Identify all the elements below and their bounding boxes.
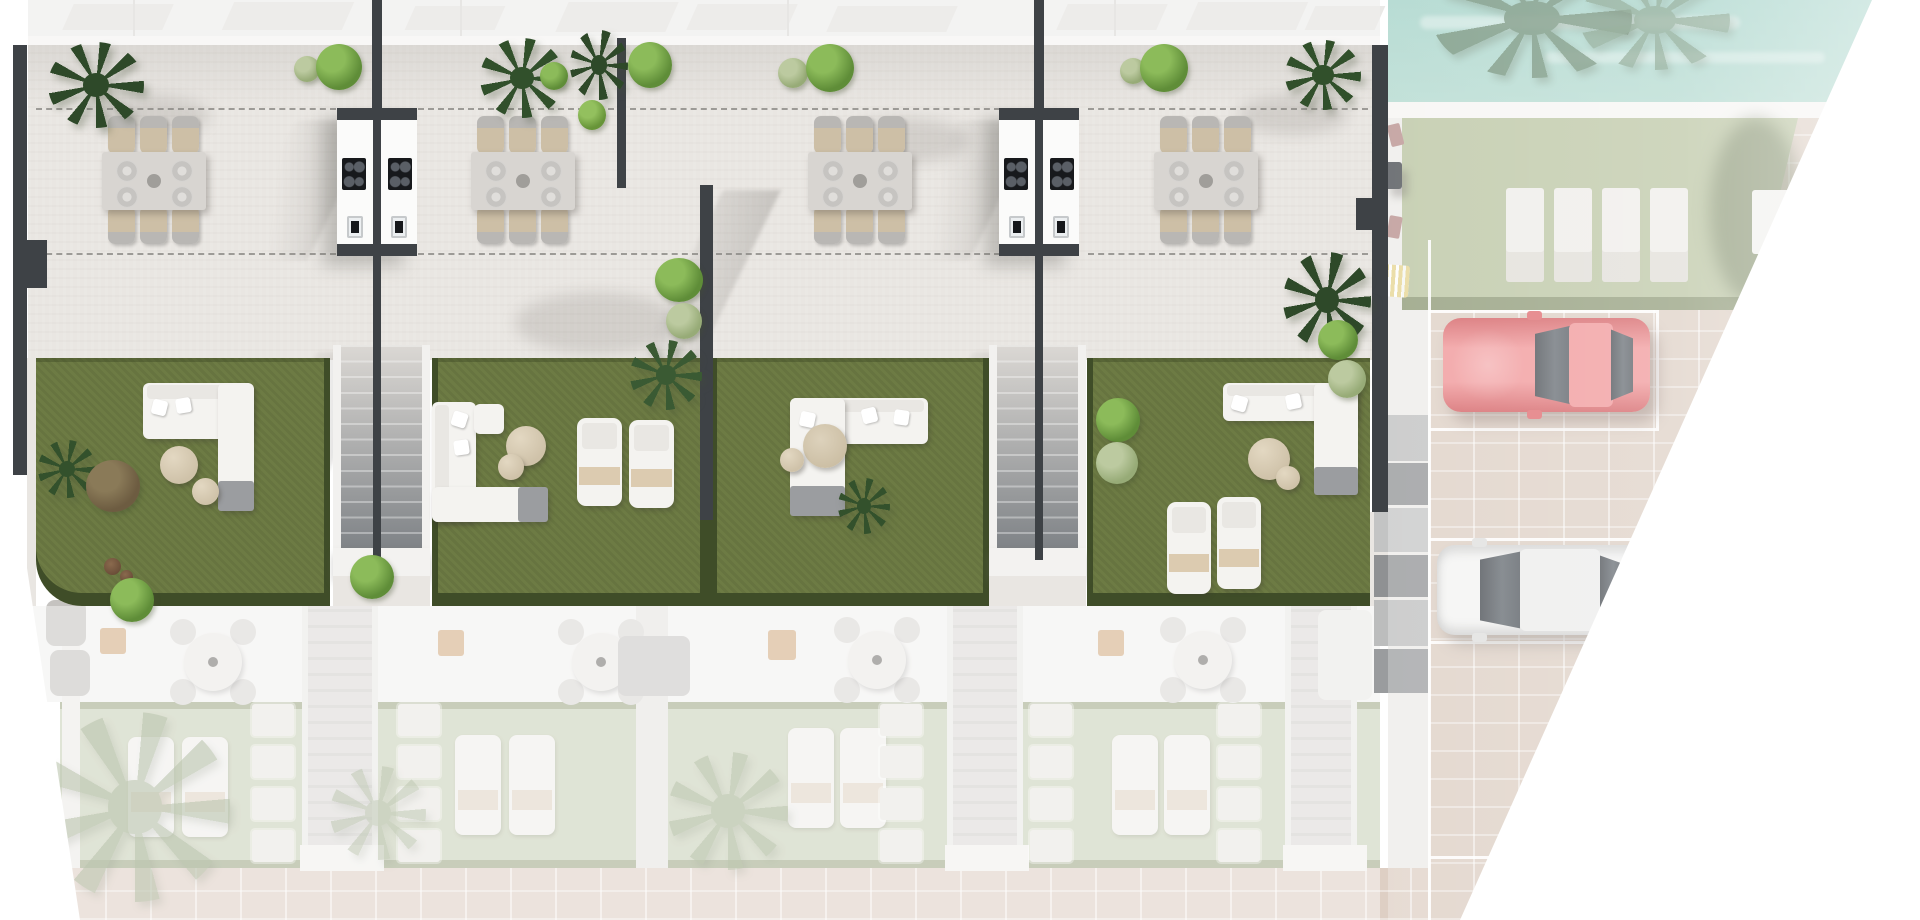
stepping-pad [1030,788,1072,820]
sun-pad [1602,188,1640,282]
lower-chair [894,677,920,703]
party-wall-stub [1034,0,1044,110]
lower-dining-table [1174,631,1232,689]
parking-line [1656,310,1659,431]
lower-lounger [1164,735,1210,835]
plate [877,186,899,208]
stepping-pad [398,704,440,736]
lower-chair [618,679,644,705]
cooktop [342,158,366,190]
lower-lounger [509,735,555,835]
tree-round [806,44,854,92]
lower-wall-line [310,606,312,702]
stepping-pad [1030,704,1072,736]
lower-chair [558,679,584,705]
stepping-pad [252,704,294,736]
sun-lounger [1217,497,1261,589]
chair [108,206,135,244]
palm-tree [1285,40,1361,110]
plate [540,186,562,208]
pool-ripple [1545,52,1825,63]
wall-notch [1356,198,1372,230]
lower-chair [230,619,256,645]
stair-side-rail [1078,345,1086,551]
lower-table-center [208,657,218,667]
door-mat [1387,123,1405,147]
dashed-canopy-line [36,253,336,255]
stepping-pad [1030,746,1072,778]
stepping-pad [1218,704,1260,736]
stepping-pad [1218,788,1260,820]
bush [666,303,702,339]
stair-side-rail [422,345,430,551]
side-mirror [1472,538,1487,547]
side-mirror [1472,633,1487,642]
roof-fade-overlay [28,0,1380,36]
garden-bush [110,578,154,622]
stepping-pad [1218,830,1260,862]
garden-fern [838,478,890,534]
sink [391,216,407,238]
cooktop [1004,158,1028,190]
stepping-pad [252,746,294,778]
chair [172,206,199,244]
lower-chair [1220,617,1246,643]
side-mirror [1527,410,1542,419]
tree-round [1096,398,1140,442]
sun-lounger [629,420,674,508]
chair [814,206,841,244]
stepping-pad [398,788,440,820]
plant-small [578,100,606,130]
chair [140,206,167,244]
parking-line [1430,538,1656,541]
lower-counter [768,630,796,660]
lower-floor [28,606,1380,702]
lower-stair-path [302,606,378,868]
lower-chair [1160,677,1186,703]
tree-round [316,44,362,90]
cooktop [1050,158,1074,190]
wall-notch [13,240,47,288]
side-mirror [1527,311,1542,320]
lower-table-center [1198,655,1208,665]
stepping-pad [1030,830,1072,862]
plate [822,186,844,208]
bush [1328,360,1366,398]
palm-over-pool [1580,0,1730,70]
garden-bush [350,555,394,599]
chair [878,206,905,244]
plate [1168,160,1190,182]
palm-tree [330,766,426,860]
parking-line [1430,428,1656,431]
lower-dining-table [572,633,630,691]
chair [878,116,905,154]
lower-dining-table [184,633,242,691]
lower-lounger [128,737,174,837]
hood-highlight [1451,328,1525,402]
sink [347,216,363,238]
dashed-canopy-line [630,108,1000,110]
lower-chair [170,679,196,705]
sun-pad [1506,188,1544,282]
lower-stair-path [947,606,1023,868]
lower-chair [618,619,644,645]
chair [1160,116,1187,154]
chair [509,206,536,244]
lower-landing [1283,845,1367,871]
terrace-fill [1370,512,1388,606]
stepping-pad [1218,746,1260,778]
tree-round [1140,44,1188,92]
chair [1224,116,1251,154]
chair [477,206,504,244]
chair [140,116,167,154]
palm-tree [570,30,628,100]
chair [1192,206,1219,244]
bowl [1199,174,1213,188]
lower-counter [100,628,126,654]
lower-armchair [50,650,90,696]
lower-wall-line [640,606,642,702]
plate [877,160,899,182]
stair-approach [989,576,1086,606]
stepping-pad [880,704,922,736]
lower-dining-table [848,631,906,689]
chair [541,206,568,244]
lower-chair [834,677,860,703]
pillow [893,409,910,426]
car-red [1443,318,1650,412]
lower-chair [894,617,920,643]
car-roof [1520,549,1600,631]
dashed-canopy-line [716,253,1000,255]
stair-treads [341,345,422,551]
windshield [1480,550,1520,630]
planter-pot [104,558,121,575]
tree-round [628,42,672,88]
sun-pad [1650,188,1688,282]
windshield [1535,324,1571,406]
stepping-pad [398,830,440,862]
stepping-pad [880,830,922,862]
hedge-fill [700,520,713,606]
handrail [373,108,381,560]
sink [1009,216,1025,238]
lower-lounger [182,737,228,837]
lower-wall-line [965,606,967,702]
bowl [147,174,161,188]
lower-counter [438,630,464,656]
car-roof [1569,323,1613,407]
plate [1223,186,1245,208]
chair [509,116,536,154]
lower-chair [834,617,860,643]
chair [1224,206,1251,244]
bush [1096,442,1138,484]
pillow [453,439,470,456]
tree-round [655,258,703,302]
site-plan-canvas [0,0,1920,920]
chair [846,206,873,244]
handrail [1035,108,1043,560]
plate [1168,186,1190,208]
lower-table-center [872,655,882,665]
plate [116,160,138,182]
palm-tree [668,752,788,870]
stair-side-rail [333,345,341,551]
pouf [1276,466,1300,490]
stepping-pad [880,746,922,778]
stepping-pad [880,788,922,820]
pillow [175,397,192,414]
lower-counter [1098,630,1124,656]
bowl [516,174,530,188]
bush [540,62,568,90]
lower-sofa [1318,610,1372,700]
cooktop [388,158,412,190]
bush [778,58,808,88]
site-boundary-cover-right [1400,0,1920,920]
side-walkway [1388,118,1428,868]
shared-lawn [1402,118,1800,310]
pouf [192,478,219,505]
parking-line [1430,310,1656,313]
lower-chair [1160,617,1186,643]
chair [477,116,504,154]
dry-shrub [86,460,140,512]
pouf [160,446,198,484]
lower-chair [1220,677,1246,703]
lower-lawn [60,702,1380,868]
lower-armchair [46,600,86,646]
sink [1053,216,1069,238]
lower-chair [558,619,584,645]
boundary-wall-segment [1374,649,1428,693]
palm-tree [630,340,702,410]
parking-line [1428,240,1431,920]
chair [814,116,841,154]
sun-lounger [1167,502,1211,594]
pouf [498,454,524,480]
street-pavement [60,868,1440,920]
rear-window [1611,328,1633,402]
chair [1160,206,1187,244]
armchair [474,404,504,434]
plate [171,160,193,182]
staircase-1 [333,345,430,551]
round-rug [803,424,847,468]
pillow [1285,393,1303,411]
sun-pad [1554,188,1592,282]
lower-chair [230,679,256,705]
pool-deck [1388,102,1866,118]
pool-ripple [1420,16,1740,29]
lower-sofa [618,636,690,696]
lower-fade-overlay [28,606,1380,920]
lower-table-center [596,657,606,667]
lower-lounger [840,728,886,828]
bush [1318,320,1358,360]
party-wall-stub [372,0,382,110]
lower-wall-line [1290,606,1292,702]
bowl [853,174,867,188]
party-wall-2-3 [700,185,713,520]
sofa-throw [218,481,254,511]
chair [172,116,199,154]
sofa-throw [1314,467,1358,495]
boundary-wall-right [1372,45,1388,512]
sun-lounger [577,418,622,506]
palm-over-pool [1432,0,1632,78]
terrace-fill [27,358,36,606]
plate [822,160,844,182]
dashed-canopy-line [418,253,698,255]
door-mat [1386,215,1403,239]
chair [1192,116,1219,154]
lower-lounger [788,728,834,828]
lower-stair-path [1285,606,1357,868]
stepping-pad [398,746,440,778]
lower-lounger [455,735,501,835]
stepping-pad [252,830,294,862]
plate [116,186,138,208]
chair [541,116,568,154]
sofa-throw [790,486,845,516]
pool [1388,0,1872,102]
plate [485,186,507,208]
stepping-pad [252,788,294,820]
plate [1223,160,1245,182]
plate [171,186,193,208]
sofa-throw [518,487,548,522]
pouf [780,448,804,472]
plate [485,160,507,182]
chair [846,116,873,154]
lower-chair [170,619,196,645]
roof-edge-gap [28,36,1380,45]
lower-walk-path [636,606,668,868]
palm-tree [48,42,144,128]
boundary-wall-segment [1374,600,1428,646]
lower-landing [300,845,384,871]
plate [540,160,562,182]
stair-side-rail [989,345,997,551]
lower-landing [945,845,1029,871]
lower-lounger [1112,735,1158,835]
